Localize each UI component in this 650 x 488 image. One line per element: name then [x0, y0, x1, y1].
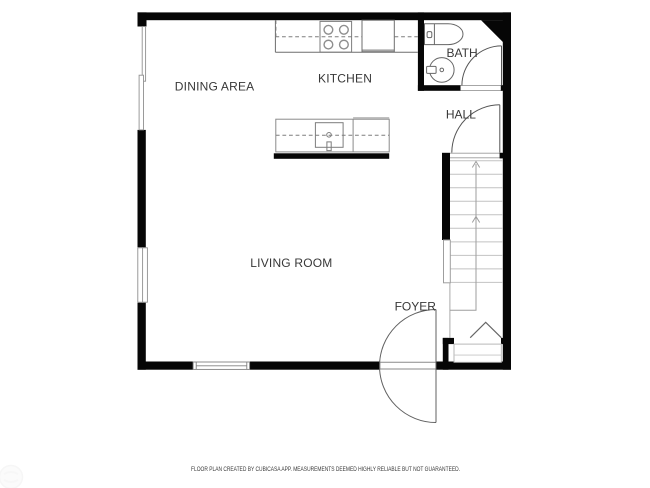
svg-text:HALL: HALL [446, 108, 476, 122]
svg-text:FLOOR PLAN CREATED BY CUBICASA: FLOOR PLAN CREATED BY CUBICASA APP. MEAS… [191, 466, 460, 473]
svg-text:FOYER: FOYER [395, 299, 437, 313]
svg-text:BATH: BATH [447, 46, 478, 60]
svg-text:LIVING ROOM: LIVING ROOM [250, 256, 332, 270]
svg-text:DINING AREA: DINING AREA [175, 80, 255, 94]
svg-text:KITCHEN: KITCHEN [318, 72, 372, 86]
